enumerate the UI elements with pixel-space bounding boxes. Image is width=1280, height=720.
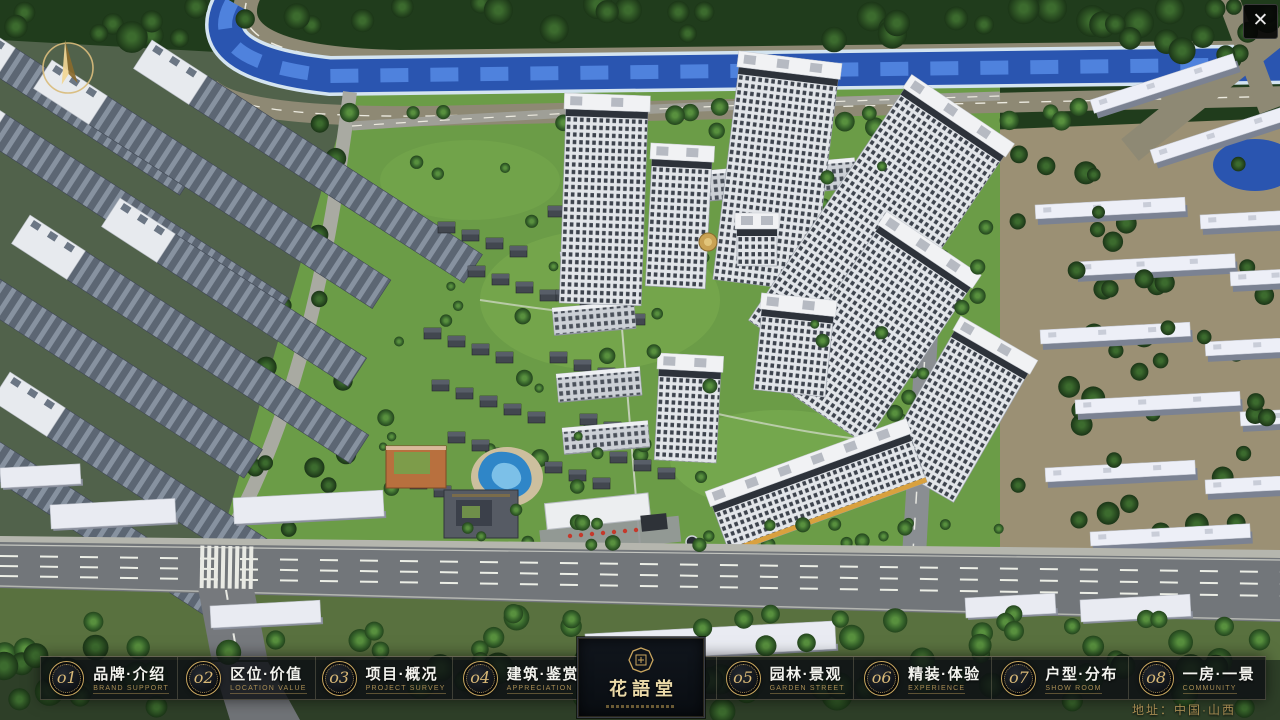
seal-icon xyxy=(628,647,654,673)
menu-label-zh: 园林·景观 xyxy=(770,663,843,684)
medallion-05: o5 xyxy=(726,661,761,696)
menu-item-floorplans[interactable]: o7 户型·分布 SHOW ROOM xyxy=(992,657,1129,699)
medallion-08: o8 xyxy=(1139,661,1174,696)
presentation-screen: ✕ o1 品牌·介绍 BRAND SUPPORT o2 区位·价值 LOCATI… xyxy=(0,0,1280,720)
logo-caption-line xyxy=(606,705,676,708)
compass-icon xyxy=(36,30,100,102)
menu-item-brand-intro[interactable]: o1 品牌·介绍 BRAND SUPPORT xyxy=(40,657,178,699)
menu-label-en: BRAND SUPPORT xyxy=(93,685,169,694)
project-logo-panel[interactable]: 花語堂 xyxy=(577,637,705,718)
medallion-01: o1 xyxy=(49,661,84,696)
project-address: 地址：中国·山西 xyxy=(1132,701,1236,718)
menu-item-decor-experience[interactable]: o6 精装·体验 EXPERIENCE xyxy=(854,657,991,699)
menu-item-garden-landscape[interactable]: o5 园林·景观 GARDEN STREET xyxy=(717,657,854,699)
menu-label-en: GARDEN STREET xyxy=(770,685,845,694)
medallion-02: o2 xyxy=(186,661,221,696)
menu-item-architecture[interactable]: o4 建筑·鉴赏 APPRECIATION xyxy=(453,657,590,699)
medallion-03: o3 xyxy=(322,661,357,696)
close-button[interactable]: ✕ xyxy=(1243,4,1278,39)
menu-label-zh: 精装·体验 xyxy=(908,663,981,684)
menu-item-location-value[interactable]: o2 区位·价值 LOCATION VALUE xyxy=(178,657,315,699)
menu-label-en: PROJECT SURVEY xyxy=(366,685,446,694)
aerial-scene xyxy=(0,0,1280,720)
menu-label-en: COMMUNITY xyxy=(1183,685,1237,694)
project-name: 花語堂 xyxy=(604,675,678,701)
medallion-07: o7 xyxy=(1001,661,1036,696)
menu-label-en: EXPERIENCE xyxy=(908,685,965,694)
medallion-06: o6 xyxy=(864,661,899,696)
menu-label-zh: 建筑·鉴赏 xyxy=(507,663,580,684)
menu-label-zh: 一房·一景 xyxy=(1183,663,1256,684)
menu-label-zh: 区位·价值 xyxy=(230,663,303,684)
menu-label-zh: 项目·概况 xyxy=(366,663,439,684)
menu-label-en: APPRECIATION xyxy=(507,685,573,694)
menu-label-zh: 品牌·介绍 xyxy=(93,663,166,684)
medallion-04: o4 xyxy=(463,661,498,696)
menu-label-zh: 户型·分布 xyxy=(1045,663,1118,684)
menu-label-en: SHOW ROOM xyxy=(1045,685,1101,694)
menu-item-project-overview[interactable]: o3 项目·概况 PROJECT SURVEY xyxy=(316,657,453,699)
menu-item-one-house-one-view[interactable]: o8 一房·一景 COMMUNITY xyxy=(1129,657,1266,699)
menu-label-en: LOCATION VALUE xyxy=(230,685,306,694)
